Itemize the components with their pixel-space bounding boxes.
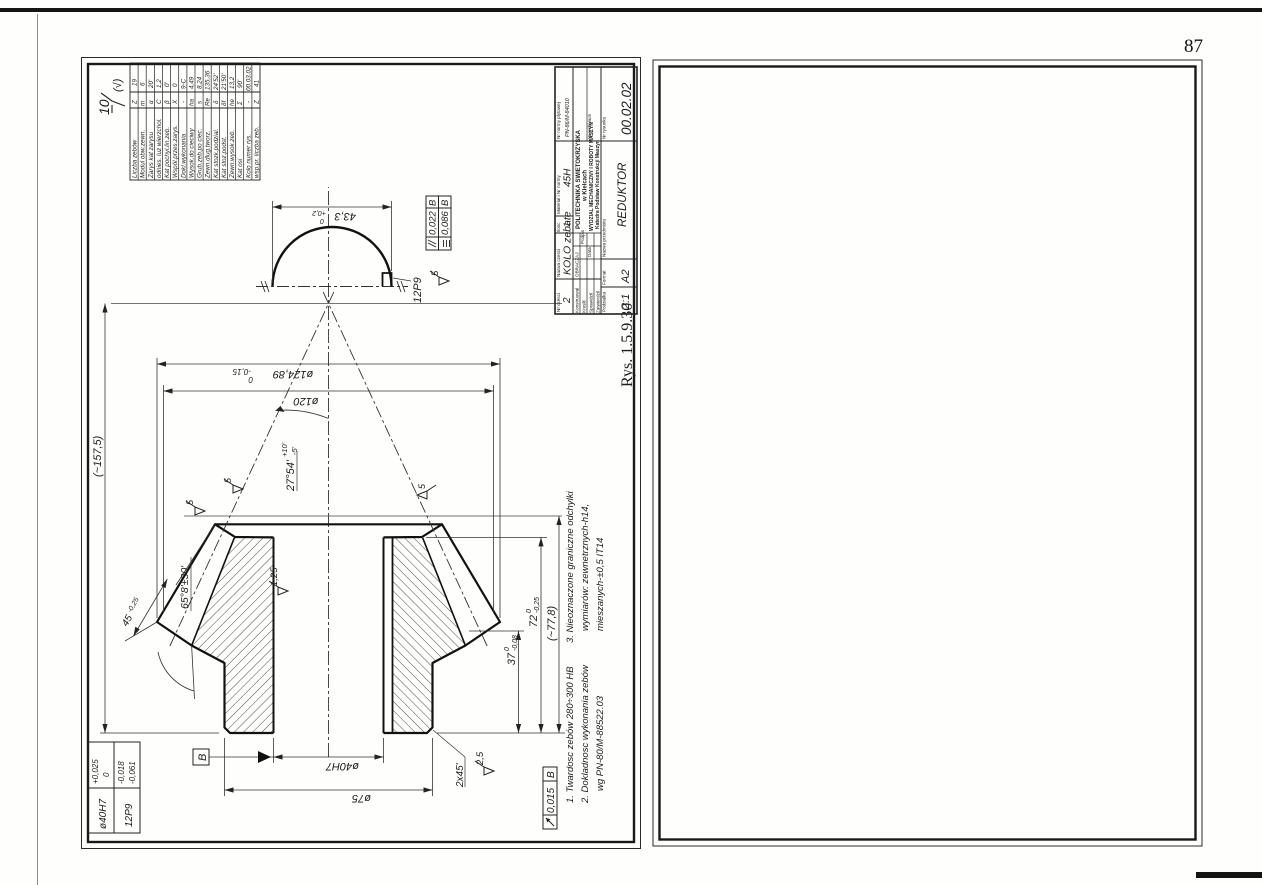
- svg-text:Modul obw.zewn.: Modul obw.zewn.: [140, 130, 147, 178]
- svg-text:24'52': 24'52': [213, 73, 220, 91]
- svg-text:Nazwa przedmiotu: Nazwa przedmiotu: [602, 219, 607, 257]
- svg-text:+0,2: +0,2: [312, 209, 326, 216]
- svg-text:00.03.02: 00.03.02: [245, 66, 252, 91]
- svg-text:+10': +10': [280, 442, 289, 457]
- svg-text:+0,025: +0,025: [91, 759, 100, 784]
- svg-text:1: 1: [562, 222, 572, 227]
- svg-text:A2: A2: [620, 270, 632, 284]
- svg-text:Z: Z: [132, 99, 139, 105]
- svg-text:0,015: 0,015: [546, 788, 557, 813]
- svg-text:wg PN-80/M-88522.03: wg PN-80/M-88522.03: [595, 695, 606, 791]
- svg-text:10: 10: [96, 99, 112, 115]
- svg-text:PN-86/M-84010: PN-86/M-84010: [565, 97, 571, 137]
- svg-text:37: 37: [506, 652, 518, 665]
- svg-text:-: -: [245, 101, 252, 103]
- svg-text:ø75: ø75: [351, 792, 371, 804]
- svg-text:-: -: [180, 101, 187, 103]
- svg-text:Kat stozk.podzial.: Kat stozk.podzial.: [213, 129, 220, 178]
- svg-text:8,24: 8,24: [197, 76, 204, 89]
- svg-text:Konstruowal: Konstruowal: [575, 288, 580, 313]
- svg-text:Nr normy plytowej: Nr normy plytowej: [556, 102, 561, 139]
- svg-text:Wysok.do cieciwy: Wysok.do cieciwy: [188, 127, 195, 178]
- svg-text:12P9: 12P9: [412, 277, 424, 303]
- svg-text:0: 0: [526, 609, 533, 613]
- svg-text:ha: ha: [188, 98, 195, 106]
- svg-text:45H: 45H: [563, 168, 574, 187]
- svg-text:Zewn.wysok.zeb.: Zewn.wysok.zeb.: [229, 130, 236, 179]
- svg-text:he: he: [229, 98, 236, 106]
- svg-text:Zarys kat zarysu: Zarys kat zarysu: [148, 131, 155, 179]
- svg-text:2,5: 2,5: [475, 751, 486, 766]
- svg-text:Kat pochyl.lin.zeb.: Kat pochyl.lin.zeb.: [164, 127, 171, 178]
- svg-text:mieszanych-±0,5 IT14: mieszanych-±0,5 IT14: [595, 538, 606, 631]
- svg-text:2. Dokladnosc wykonania zebów: 2. Dokladnosc wykonania zebów: [580, 664, 591, 804]
- svg-text:δf: δf: [221, 100, 228, 106]
- svg-text:2: 2: [562, 297, 573, 304]
- svg-text:POLITECHNIKA SWIETOKRZYSKA: POLITECHNIKA SWIETOKRZYSKA: [576, 129, 582, 229]
- svg-text:(√): (√): [112, 78, 124, 92]
- svg-text:Liczba zebów: Liczba zebów: [132, 139, 139, 178]
- svg-text:5: 5: [417, 483, 427, 489]
- svg-text:Sprawdzil: Sprawdzil: [589, 293, 594, 313]
- svg-text:-0,018: -0,018: [117, 761, 126, 784]
- svg-text:00.02.02: 00.02.02: [619, 82, 634, 135]
- svg-text:0: 0: [320, 217, 324, 224]
- svg-text:3. Nieoznaczone graniczne odch: 3. Nieoznaczone graniczne odchylki: [565, 491, 576, 643]
- svg-text:2:1: 2:1: [620, 294, 632, 310]
- svg-text:B: B: [546, 771, 557, 778]
- svg-text:12P9: 12P9: [124, 803, 135, 827]
- svg-text:Z: Z: [253, 99, 260, 105]
- svg-text:Zatwierdzil: Zatwierdzil: [596, 291, 601, 313]
- svg-text:43,3: 43,3: [334, 210, 356, 222]
- svg-text:Podzialka: Podzialka: [602, 292, 607, 312]
- svg-text:ø40H7: ø40H7: [325, 760, 359, 772]
- svg-text:Material i Nr normy: Material i Nr normy: [556, 174, 561, 214]
- svg-text:5: 5: [185, 499, 195, 505]
- svg-text:90': 90': [237, 79, 244, 88]
- svg-text:ø124,89: ø124,89: [273, 368, 313, 380]
- svg-text:13,2: 13,2: [229, 76, 236, 89]
- svg-text:135,36: 135,36: [205, 70, 212, 90]
- svg-text:Zewn.dlug.tworz.: Zewn.dlug.tworz.: [205, 130, 212, 179]
- svg-text:72: 72: [528, 615, 540, 627]
- svg-text:-0,25: -0,25: [127, 597, 141, 614]
- svg-text:-0,25: -0,25: [534, 597, 541, 613]
- svg-text:Kat osi: Kat osi: [237, 158, 244, 178]
- svg-text:Nr rysunku: Nr rysunku: [602, 116, 607, 139]
- svg-text:1. Twardosc zebów 280÷300 HB: 1. Twardosc zebów 280÷300 HB: [565, 666, 576, 803]
- svg-text:α: α: [148, 100, 155, 104]
- svg-text:Ilosc: Ilosc: [556, 222, 561, 232]
- svg-text:-0,08: -0,08: [512, 635, 519, 651]
- svg-text:REDUKTOR: REDUKTOR: [617, 163, 629, 227]
- svg-text:Grub.zeb.po ciec.: Grub.zeb.po ciec.: [197, 129, 204, 178]
- svg-text:Kreslil: Kreslil: [582, 300, 587, 313]
- svg-text:Σ: Σ: [237, 101, 244, 106]
- svg-text:δ: δ: [213, 100, 220, 104]
- svg-text:(~77,8): (~77,8): [546, 606, 558, 641]
- svg-text:wymiarów: zewnetrznych-h14,: wymiarów: zewnetrznych-h14,: [580, 504, 591, 631]
- svg-text:Dokl.wykonania: Dokl.wykonania: [180, 133, 187, 178]
- svg-text:27°54': 27°54': [285, 459, 297, 492]
- svg-text:0,086: 0,086: [440, 211, 451, 235]
- svg-text:0': 0': [164, 81, 171, 87]
- svg-text:21'50': 21'50': [221, 73, 228, 91]
- svg-text:41: 41: [253, 80, 260, 87]
- svg-text:ø120: ø120: [293, 395, 319, 407]
- svg-text:wsp.pr. liczba zeb.: wsp.pr. liczba zeb.: [253, 126, 260, 178]
- svg-text:6: 6: [140, 82, 147, 86]
- svg-text:0: 0: [102, 772, 111, 777]
- svg-text:-5': -5': [290, 446, 299, 455]
- svg-text:B: B: [197, 754, 209, 761]
- svg-text:Re: Re: [205, 97, 212, 106]
- svg-text:w Kielcach: w Kielcach: [583, 170, 589, 202]
- svg-text:KOLO zebate: KOLO zebate: [562, 211, 574, 275]
- svg-text:0: 0: [172, 83, 179, 87]
- svg-text:45: 45: [120, 613, 135, 629]
- svg-text:-0,15: -0,15: [232, 367, 251, 376]
- svg-text:B: B: [440, 199, 451, 206]
- svg-text:B: B: [428, 199, 439, 206]
- svg-text:20': 20': [148, 79, 155, 89]
- svg-text:odnies. luz wierzchol.: odnies. luz wierzchol.: [156, 118, 163, 178]
- svg-text:Rys. 1.5.9.30: Rys. 1.5.9.30: [619, 303, 636, 387]
- svg-text:OBRACZAJ: OBRACZAJ: [575, 252, 580, 277]
- svg-text:0,022: 0,022: [428, 211, 439, 235]
- svg-text:Nr czesci: Nr czesci: [556, 293, 561, 312]
- svg-text:Katedra Podstaw Konstrukcji Ma: Katedra Podstaw Konstrukcji Maszyn: [595, 140, 601, 229]
- svg-text:Podpis: Podpis: [580, 229, 585, 244]
- svg-text:1,2: 1,2: [156, 79, 163, 88]
- svg-text:Kat stoz.podst.: Kat stoz.podst.: [221, 136, 228, 178]
- svg-text:C: C: [156, 99, 163, 104]
- svg-text:Wspól.przes.zarys.: Wspól.przes.zarys.: [172, 125, 179, 178]
- svg-text:9-C: 9-C: [180, 78, 187, 89]
- svg-text:5: 5: [223, 477, 233, 483]
- svg-text:-0,061: -0,061: [128, 761, 137, 784]
- svg-text:m: m: [140, 101, 147, 106]
- svg-text:Data: Data: [587, 247, 592, 257]
- svg-text:2x45': 2x45': [455, 762, 466, 788]
- svg-text:X: X: [172, 99, 179, 105]
- svg-text:0: 0: [504, 647, 511, 651]
- svg-text:1,25: 1,25: [269, 567, 280, 586]
- svg-text:s: s: [197, 100, 204, 104]
- svg-text:Format: Format: [602, 270, 607, 285]
- svg-text:β: β: [164, 100, 171, 105]
- svg-text:5: 5: [430, 270, 441, 276]
- svg-text:(~157,5): (~157,5): [92, 435, 104, 477]
- svg-text:ø40H7: ø40H7: [98, 799, 109, 829]
- svg-text:Nazwa czesci: Nazwa czesci: [556, 249, 561, 277]
- svg-text:Kolo numer rys.: Kolo numer rys.: [245, 134, 252, 178]
- svg-text:19: 19: [132, 78, 139, 86]
- svg-text:4,49: 4,49: [188, 76, 195, 89]
